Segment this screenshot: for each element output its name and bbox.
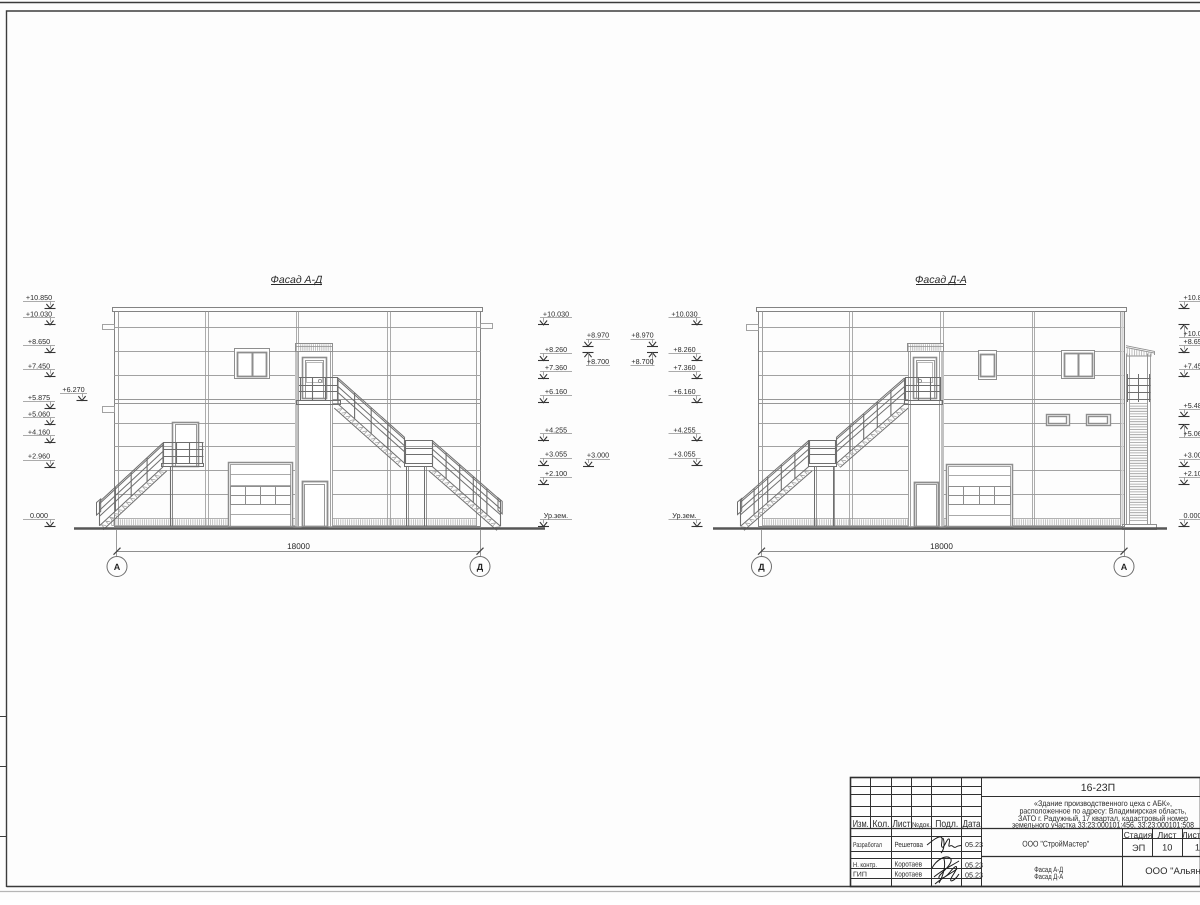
svg-text:Лист: Лист	[1158, 830, 1177, 840]
svg-text:0.000: 0.000	[1184, 511, 1200, 520]
svg-text:+5.485: +5.485	[1184, 401, 1200, 410]
svg-text:Листов: Листов	[1182, 830, 1200, 840]
svg-text:18000: 18000	[287, 542, 310, 551]
svg-text:Стадия: Стадия	[1124, 830, 1153, 840]
svg-text:+3.055: +3.055	[673, 450, 695, 459]
svg-text:+8.650: +8.650	[28, 337, 50, 346]
svg-text:земельного участка 33:23:00010: земельного участка 33:23:000101:456, 33:…	[1012, 820, 1194, 829]
svg-text:Дата: Дата	[963, 819, 981, 830]
svg-text:+7.450: +7.450	[1184, 361, 1200, 370]
svg-text:Коротаев: Коротаев	[895, 860, 923, 869]
svg-text:+8.970: +8.970	[587, 331, 609, 340]
svg-text:Кол.: Кол.	[873, 819, 890, 830]
svg-text:+3.055: +3.055	[545, 450, 567, 459]
svg-text:+7.450: +7.450	[28, 361, 50, 370]
svg-text:+8.700: +8.700	[587, 357, 609, 366]
svg-text:18: 18	[1195, 842, 1200, 852]
svg-text:Ур.зем.: Ур.зем.	[672, 511, 696, 520]
svg-text:+8.970: +8.970	[631, 331, 653, 340]
svg-text:+6.160: +6.160	[545, 387, 567, 396]
svg-text:05.23: 05.23	[965, 840, 983, 849]
svg-text:+10.030: +10.030	[26, 309, 52, 318]
svg-text:05.23: 05.23	[965, 871, 983, 880]
svg-text:А: А	[1121, 562, 1128, 572]
svg-text:16-23П: 16-23П	[1081, 782, 1115, 794]
svg-text:Коротаев: Коротаев	[895, 869, 923, 878]
svg-text:Подл.: Подл.	[935, 819, 958, 830]
svg-text:А: А	[114, 562, 121, 572]
svg-text:Ур.зем.: Ур.зем.	[544, 511, 568, 520]
svg-text:+6.160: +6.160	[673, 387, 695, 396]
svg-text:+7.360: +7.360	[673, 363, 695, 372]
svg-text:+2.100: +2.100	[1184, 469, 1200, 478]
svg-text:ООО "СтройМастер": ООО "СтройМастер"	[1022, 840, 1089, 849]
svg-text:ЭП: ЭП	[1132, 843, 1145, 853]
svg-text:+2.100: +2.100	[545, 469, 567, 478]
svg-text:+8.260: +8.260	[673, 345, 695, 354]
svg-text:+10.850: +10.850	[1184, 293, 1200, 302]
svg-text:+6.270: +6.270	[62, 385, 84, 394]
svg-text:+4.255: +4.255	[673, 426, 695, 435]
svg-text:+8.260: +8.260	[545, 345, 567, 354]
svg-text:+10.850: +10.850	[26, 293, 52, 302]
svg-text:Н. контр.: Н. контр.	[853, 862, 877, 869]
svg-text:+8.700: +8.700	[631, 357, 653, 366]
svg-text:+10.030: +10.030	[543, 309, 569, 318]
svg-text:+10.030: +10.030	[671, 309, 697, 318]
svg-text:+4.255: +4.255	[545, 426, 567, 435]
svg-text:+5.060: +5.060	[28, 409, 50, 418]
svg-text:Д: Д	[477, 562, 484, 572]
svg-text:Лист: Лист	[893, 819, 911, 830]
svg-text:+8.650: +8.650	[1184, 337, 1200, 346]
svg-text:+7.360: +7.360	[545, 363, 567, 372]
svg-text:Разработал: Разработал	[853, 841, 882, 849]
svg-text:+5.875: +5.875	[28, 393, 50, 402]
svg-text:0.000: 0.000	[30, 511, 48, 520]
svg-text:+2.960: +2.960	[28, 452, 50, 461]
svg-text:ООО "Альянс",: ООО "Альянс",	[1145, 866, 1200, 877]
svg-text:Д: Д	[758, 562, 765, 572]
svg-text:+4.160: +4.160	[28, 427, 50, 436]
svg-text:18000: 18000	[930, 542, 953, 551]
svg-text:Изм.: Изм.	[853, 819, 869, 830]
svg-text:+5.060: +5.060	[1184, 429, 1200, 438]
svg-text:10: 10	[1162, 842, 1172, 852]
svg-text:№док.: №док.	[912, 822, 931, 829]
svg-text:+3.000: +3.000	[1184, 451, 1200, 460]
svg-text:+3.000: +3.000	[587, 451, 609, 460]
svg-text:Фасад Д-А: Фасад Д-А	[1034, 872, 1064, 881]
svg-text:ГИП: ГИП	[853, 872, 867, 879]
svg-text:Решетова: Решетова	[895, 840, 924, 849]
svg-text:05.23: 05.23	[965, 861, 983, 870]
